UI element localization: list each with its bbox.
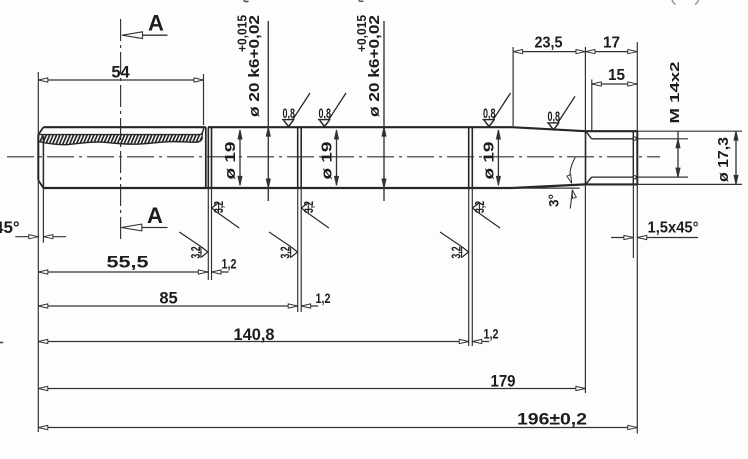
svg-text:0,8: 0,8: [282, 105, 295, 121]
svg-text:3,2: 3,2: [189, 246, 203, 258]
svg-text:0,8: 0,8: [483, 105, 496, 121]
svg-text:55,5: 55,5: [107, 254, 149, 272]
svg-text:0,8: 0,8: [318, 105, 331, 121]
svg-text:1,5x45°: 1,5x45°: [648, 220, 699, 237]
svg-text:3,2: 3,2: [473, 201, 487, 213]
svg-text:1,2: 1,2: [484, 327, 499, 342]
svg-text:ø 19: ø 19: [320, 142, 336, 180]
svg-text:1,2: 1,2: [316, 291, 331, 306]
svg-text:17: 17: [603, 35, 620, 52]
svg-text:ø 17,3: ø 17,3: [716, 137, 732, 182]
svg-text:85: 85: [159, 290, 177, 308]
svg-text:3,2: 3,2: [302, 201, 316, 213]
svg-text:23,5: 23,5: [535, 35, 563, 52]
svg-text:ø 19: ø 19: [223, 142, 239, 180]
svg-text:+0,015: +0,015: [235, 15, 250, 52]
svg-text:3°: 3°: [547, 194, 562, 207]
svg-text:3,2: 3,2: [450, 246, 464, 258]
svg-text:A: A: [147, 203, 163, 228]
svg-text:179: 179: [491, 373, 516, 391]
svg-text:+0,015: +0,015: [354, 15, 369, 52]
svg-text:0,8: 0,8: [547, 108, 560, 124]
svg-text:15: 15: [608, 67, 625, 84]
svg-text:45°: 45°: [0, 218, 20, 237]
svg-text:3,2: 3,2: [279, 246, 293, 258]
svg-text:3,2: 3,2: [212, 201, 226, 213]
svg-text:1,2: 1,2: [222, 257, 237, 272]
svg-text:196±0,2: 196±0,2: [517, 411, 587, 429]
svg-text:A: A: [148, 11, 164, 36]
svg-text:M 14x2: M 14x2: [667, 62, 682, 124]
svg-text:54: 54: [111, 64, 130, 82]
svg-text:140,8: 140,8: [234, 326, 275, 344]
svg-text:ø 19: ø 19: [481, 142, 497, 180]
